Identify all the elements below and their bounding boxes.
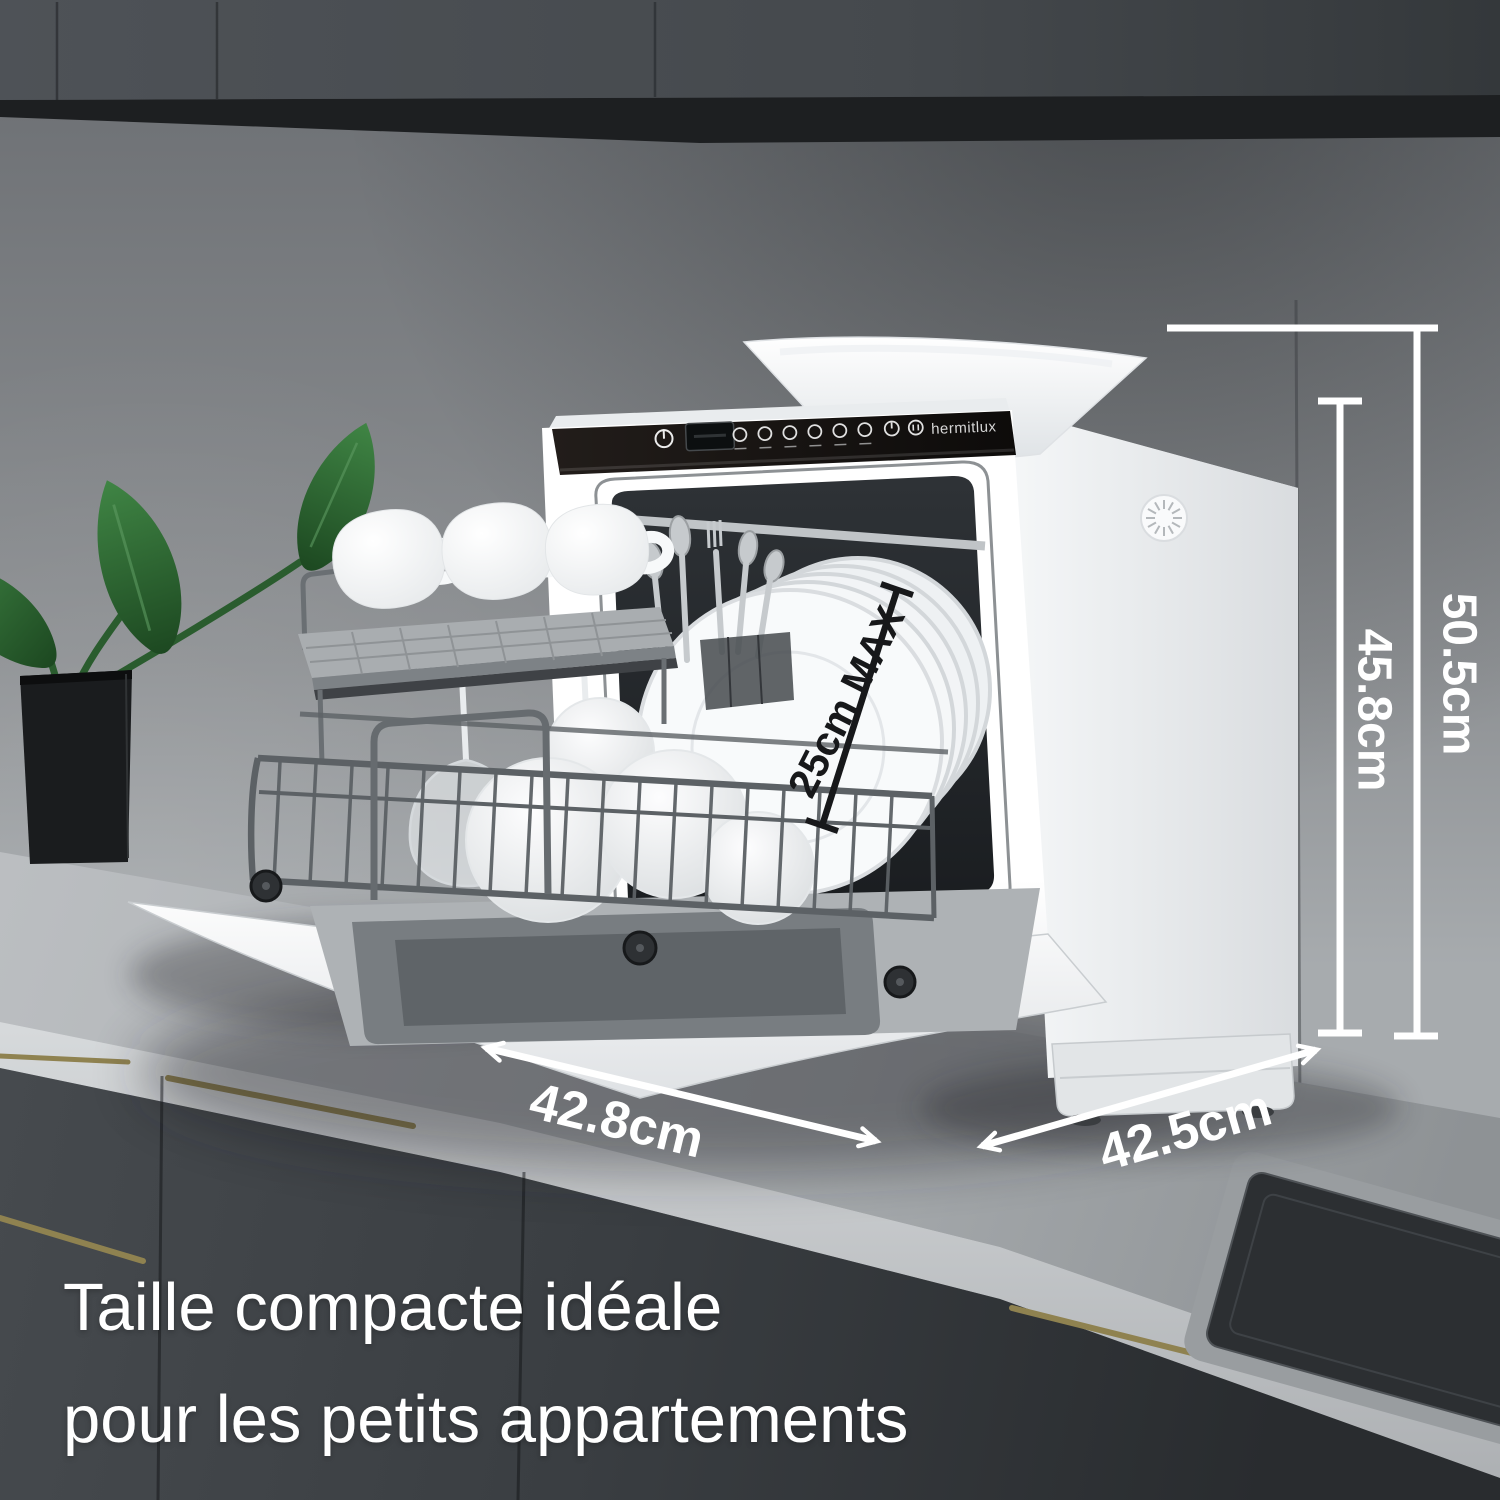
body-height-label: 45.8cm (1347, 629, 1400, 792)
caption-line-2: pour les petits appartements (63, 1364, 908, 1476)
plant-pot (20, 670, 132, 864)
product-scene: hermitlux (0, 0, 1500, 1500)
caption: Taille compacte idéale pour les petits a… (63, 1252, 908, 1476)
brand-logo: hermitlux (931, 418, 997, 438)
total-height-label: 50.5cm (1432, 593, 1485, 756)
vent-icon (1141, 495, 1187, 541)
upper-cabinet (0, 0, 1500, 143)
cutlery-basket (700, 632, 794, 710)
caption-line-1: Taille compacte idéale (63, 1252, 908, 1364)
lcd-display (685, 422, 734, 451)
